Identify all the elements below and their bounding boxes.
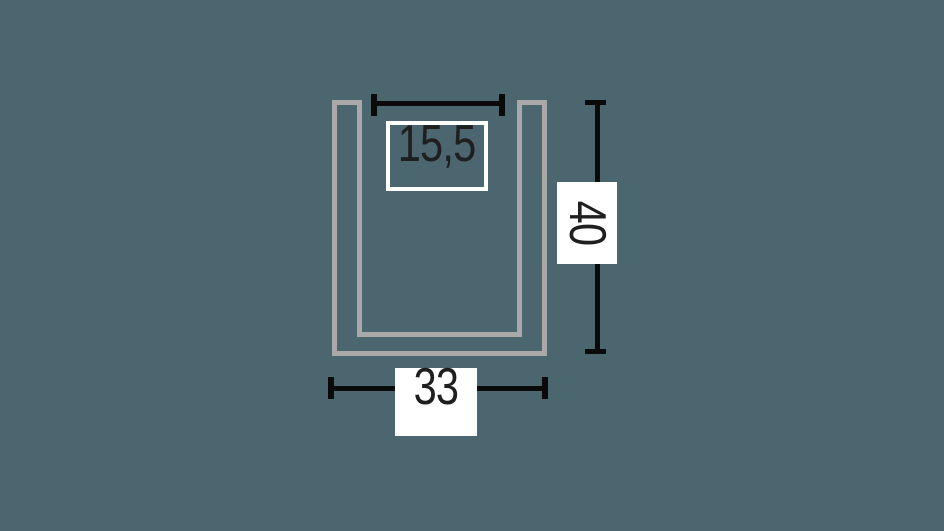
dimension-value: 33 [414,361,459,413]
channel-flange-cap-left [332,100,362,105]
dimension-tick-top [585,100,606,105]
dimension-value: 15,5 [398,118,476,170]
channel-flange-cap-right [517,100,547,105]
dimension-label-inner-width: 15,5 [386,121,488,191]
dimension-label-height: 40 [557,182,617,264]
dimension-tick-right [542,377,548,399]
dimension-diagram: 15,5 40 33 [0,0,944,531]
dimension-line [374,101,502,106]
dimension-tick-left [371,94,377,116]
dimension-tick-right [499,94,505,116]
dimension-tick-left [328,377,334,399]
dimension-value: 40 [561,201,613,246]
dimension-tick-bottom [585,349,606,354]
dimension-label-outer-width: 33 [395,368,477,436]
